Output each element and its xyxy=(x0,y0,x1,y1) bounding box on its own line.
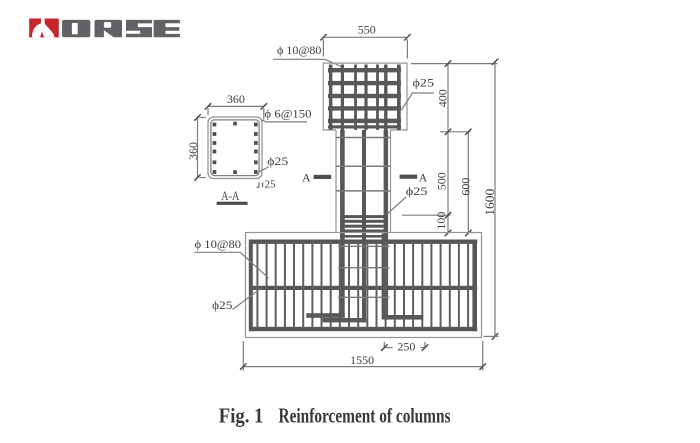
svg-text:400: 400 xyxy=(436,89,450,107)
svg-text:Fig. 1: Fig. 1 xyxy=(219,404,264,428)
svg-text:360: 360 xyxy=(186,142,200,160)
svg-text:ϕ25: ϕ25 xyxy=(212,298,232,312)
svg-text:550: 550 xyxy=(358,23,376,37)
svg-text:ϕ25: ϕ25 xyxy=(413,76,435,90)
svg-text:250: 250 xyxy=(397,339,415,353)
svg-text:ϕ25: ϕ25 xyxy=(267,154,288,168)
svg-text:1600: 1600 xyxy=(483,189,497,216)
svg-text:600: 600 xyxy=(459,178,473,196)
svg-text:ϕ25: ϕ25 xyxy=(406,184,428,198)
svg-text:1550: 1550 xyxy=(350,353,374,367)
svg-text:ϕ 6@150: ϕ 6@150 xyxy=(265,107,312,121)
svg-text:100: 100 xyxy=(434,212,448,230)
svg-text:A: A xyxy=(419,170,428,184)
svg-text:Reinforcement of columns: Reinforcement of columns xyxy=(279,404,451,428)
svg-text:A: A xyxy=(302,170,311,184)
svg-text:25: 25 xyxy=(265,179,277,191)
svg-text:A-A: A-A xyxy=(221,189,239,203)
svg-text:500: 500 xyxy=(435,172,449,190)
svg-text:ϕ 10@80: ϕ 10@80 xyxy=(277,43,321,57)
svg-text:ϕ 10@80: ϕ 10@80 xyxy=(195,237,242,251)
svg-text:360: 360 xyxy=(227,92,245,106)
